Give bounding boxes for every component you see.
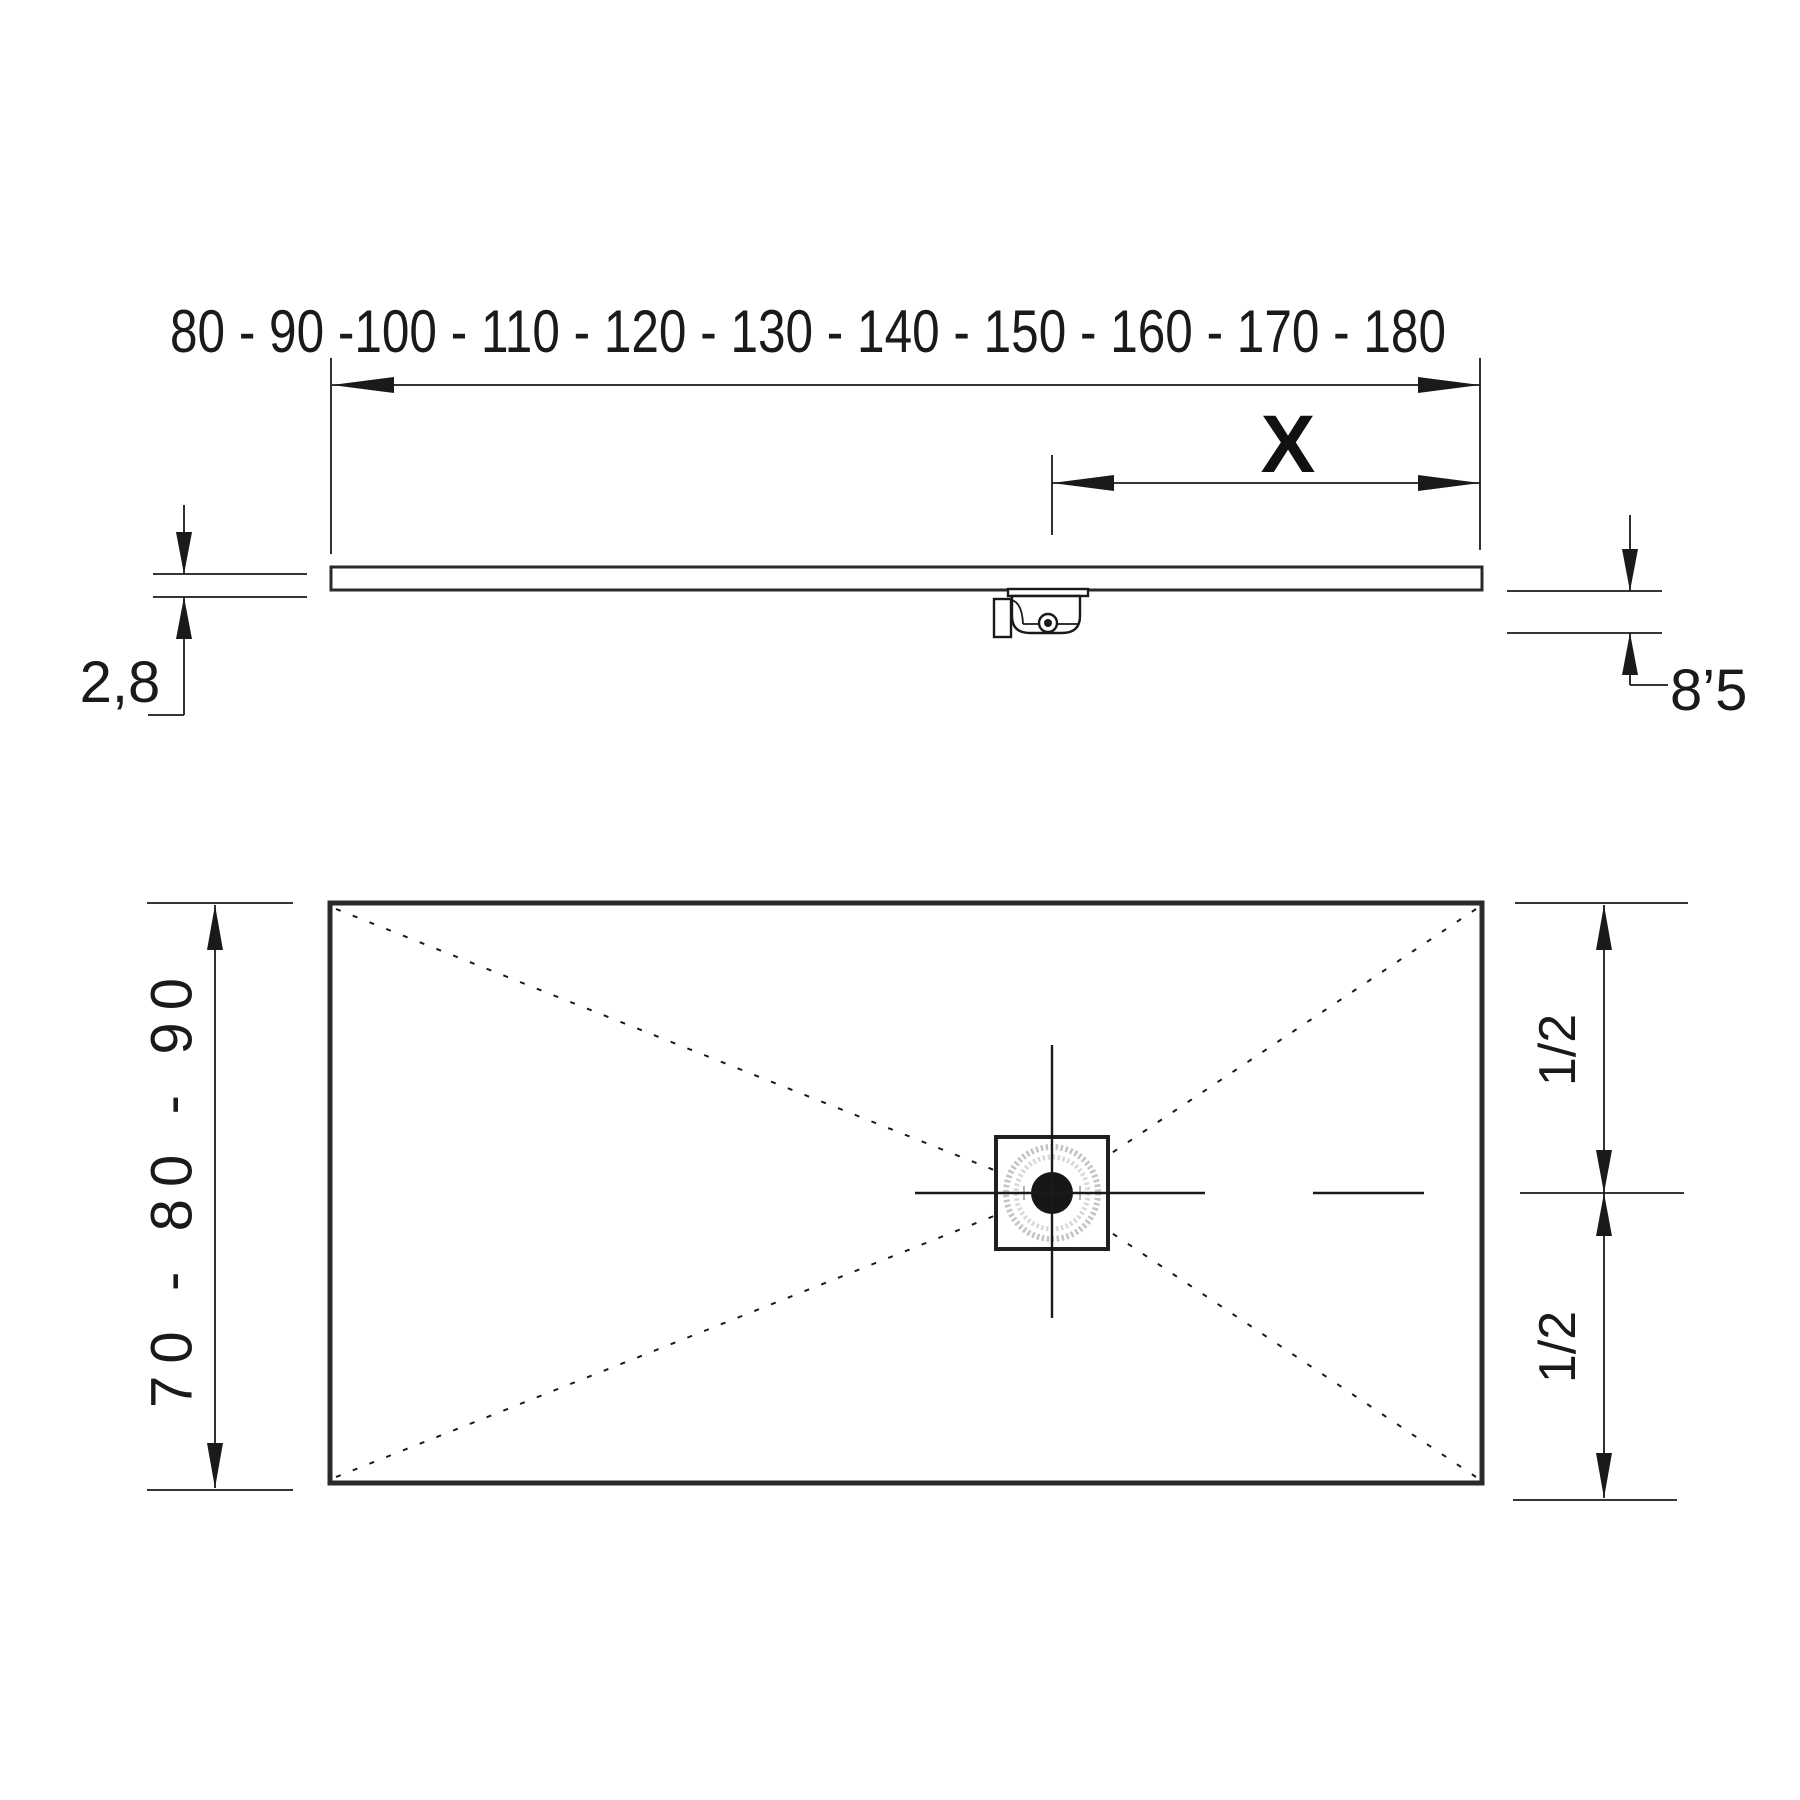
tray-profile bbox=[331, 567, 1482, 590]
arrowhead-up-icon bbox=[207, 905, 223, 950]
half-dimensions: 1/2 1/2 bbox=[1513, 903, 1688, 1500]
trap-outlet bbox=[994, 599, 1011, 637]
trap-height-dimension: 8’5 bbox=[1507, 515, 1747, 723]
arrowhead-down-icon bbox=[1622, 549, 1638, 591]
width-range-label: 80 - 90 -100 - 110 - 120 - 130 - 140 - 1… bbox=[170, 298, 1446, 365]
arrowhead-left-icon bbox=[1052, 475, 1114, 491]
side-view: 80 - 90 -100 - 110 - 120 - 130 - 140 - 1… bbox=[80, 298, 1748, 723]
arrowhead-up-icon bbox=[1596, 1193, 1612, 1236]
arrowhead-down-icon bbox=[1596, 1453, 1612, 1498]
trap-height-label: 8’5 bbox=[1670, 658, 1747, 723]
lower-half-label: 1/2 bbox=[1529, 1311, 1587, 1383]
depth-dimension: 70 - 80 - 90 bbox=[140, 903, 294, 1490]
drain-trap bbox=[994, 589, 1088, 637]
upper-half-label: 1/2 bbox=[1529, 1014, 1587, 1086]
x-dimension-label: X bbox=[1261, 399, 1316, 490]
tray-outline bbox=[330, 903, 1482, 1483]
arrowhead-down-icon bbox=[176, 532, 192, 574]
arrowhead-right-icon bbox=[1418, 475, 1480, 491]
x-dimension: X bbox=[1052, 399, 1480, 535]
depth-range-label: 70 - 80 - 90 bbox=[140, 978, 205, 1408]
trap-screw-dot bbox=[1044, 619, 1052, 627]
plan-view: 70 - 80 - 90 1/2 1/2 bbox=[140, 903, 1689, 1500]
thickness-dimension: 2,8 bbox=[80, 505, 307, 715]
arrowhead-down-icon bbox=[207, 1443, 223, 1488]
arrowhead-down-icon bbox=[1596, 1150, 1612, 1193]
technical-drawing: 80 - 90 -100 - 110 - 120 - 130 - 140 - 1… bbox=[0, 0, 1800, 1800]
arrowhead-right-icon bbox=[1418, 377, 1480, 393]
arrowhead-up-icon bbox=[1596, 905, 1612, 950]
thickness-label: 2,8 bbox=[80, 650, 161, 715]
arrowhead-left-icon bbox=[332, 377, 394, 393]
